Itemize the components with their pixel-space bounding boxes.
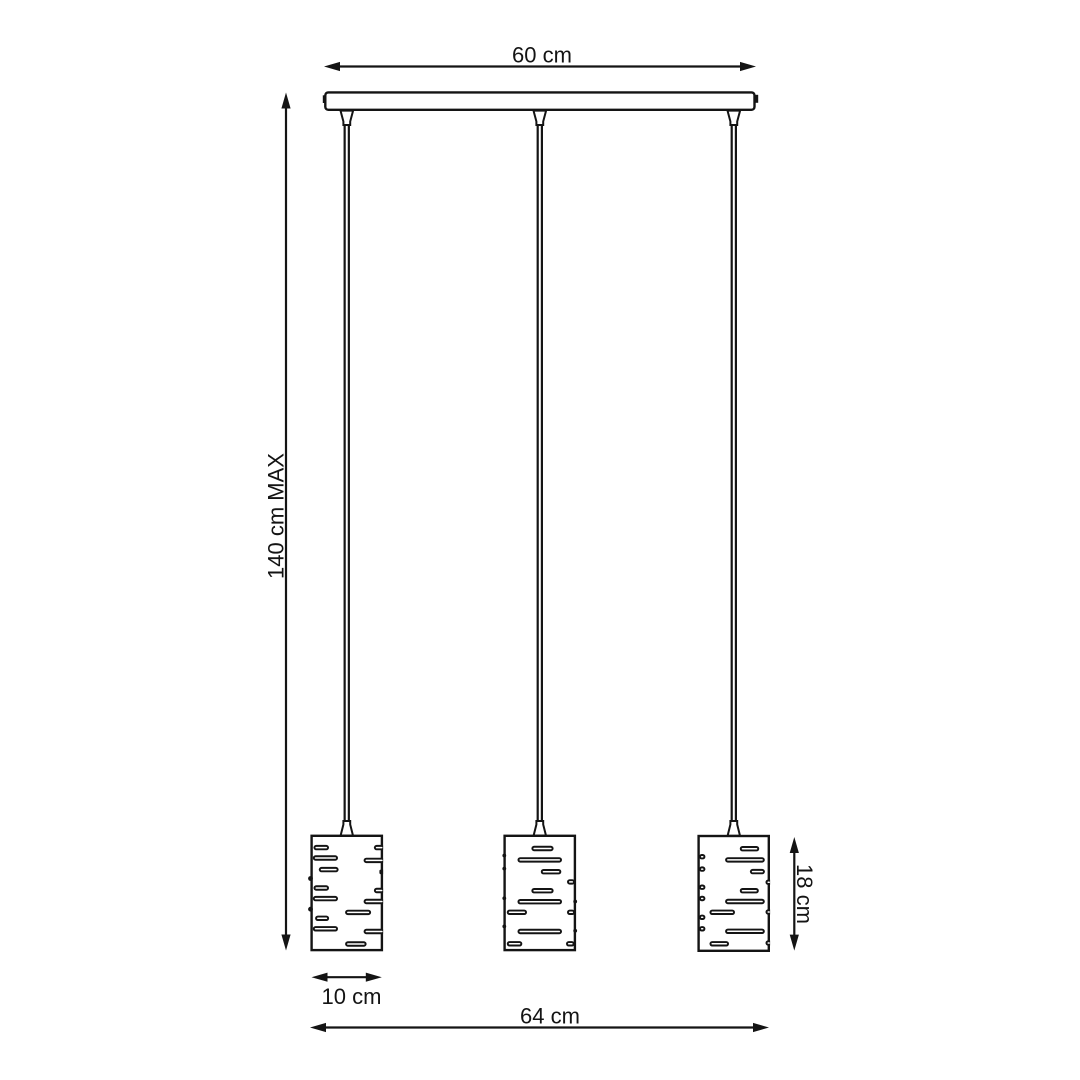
svg-text:64 cm: 64 cm [520,1004,580,1029]
svg-text:10 cm: 10 cm [322,984,382,1009]
svg-text:60 cm: 60 cm [512,43,572,68]
svg-text:18 cm: 18 cm [792,864,817,924]
svg-text:140 cm MAX: 140 cm MAX [264,453,289,579]
